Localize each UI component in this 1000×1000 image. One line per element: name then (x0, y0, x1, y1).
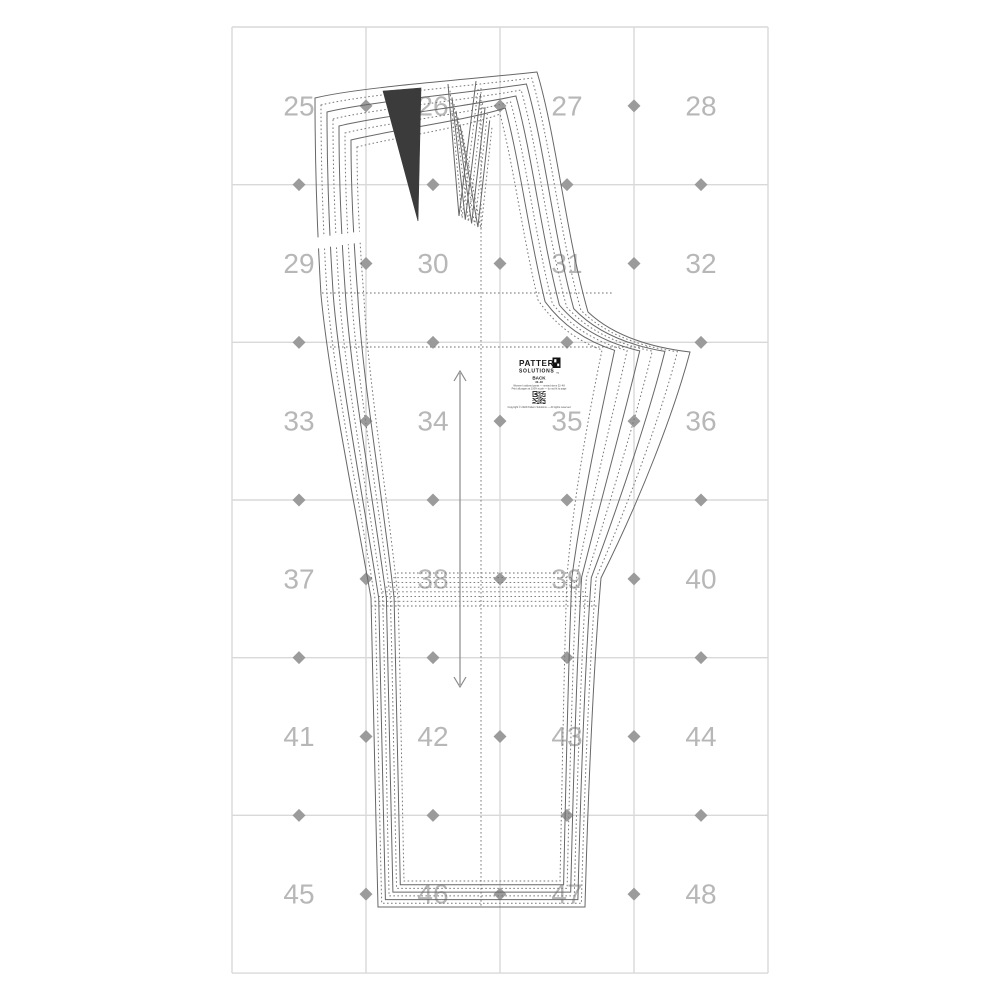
page-number: 28 (685, 90, 716, 121)
qr-module (543, 392, 544, 393)
alignment-diamond (561, 178, 574, 191)
alignment-diamond (360, 888, 373, 901)
qr-module (539, 403, 540, 404)
alignment-diamond (628, 99, 641, 112)
alignment-diamond (360, 730, 373, 743)
brand-logo-notch (554, 359, 556, 362)
qr-module (535, 391, 536, 392)
page-number: 36 (685, 406, 716, 437)
page-number: 25 (283, 90, 314, 121)
page-number: 31 (551, 248, 582, 279)
qr-module (533, 392, 534, 393)
qr-module (541, 396, 542, 397)
alignment-diamond (494, 888, 507, 901)
page-number: 46 (417, 879, 448, 910)
alignment-diamond (561, 809, 574, 822)
size-outline (321, 78, 677, 903)
qr-module (537, 391, 538, 392)
qr-module (533, 402, 534, 403)
alignment-diamond (561, 651, 574, 664)
qr-module (545, 391, 546, 392)
qr-module (545, 393, 546, 394)
qr-module (540, 395, 541, 396)
qr-module (537, 401, 538, 402)
page-number: 41 (283, 721, 314, 752)
grainline-arrow (454, 371, 466, 687)
qr-module (535, 403, 536, 404)
qr-module (537, 396, 538, 397)
qr-module (533, 394, 534, 395)
qr-module (540, 402, 541, 403)
alignment-diamond (427, 178, 440, 191)
qr-module (537, 398, 538, 399)
qr-module (535, 394, 536, 395)
qr-module (543, 403, 544, 404)
qr-module (539, 391, 540, 392)
qr-module (538, 403, 539, 404)
qr-module (536, 401, 537, 402)
page-number: 42 (417, 721, 448, 752)
qr-module (541, 403, 542, 404)
page-number: 35 (551, 406, 582, 437)
alignment-diamond (293, 494, 306, 507)
alignment-diamond (427, 336, 440, 349)
alignment-diamond (427, 651, 440, 664)
qr-module (544, 399, 545, 400)
qr-module (536, 396, 537, 397)
qr-module (536, 393, 537, 394)
qr-module (543, 398, 544, 399)
qr-module (543, 402, 544, 403)
qr-module (545, 402, 546, 403)
copyright-line: Copyright © 2024 Pattern Solutions — All… (508, 406, 572, 409)
alignment-diamond (628, 888, 641, 901)
qr-module (536, 400, 537, 401)
alignment-diamond (494, 257, 507, 270)
alignment-diamond (695, 651, 708, 664)
qr-module (544, 396, 545, 397)
qr-module (533, 391, 534, 392)
alignment-diamond (628, 257, 641, 270)
qr-module (541, 401, 542, 402)
qr-module (538, 402, 539, 403)
lengthen-shorten-gap (294, 231, 363, 251)
alignment-diamond (293, 336, 306, 349)
page-number: 44 (685, 721, 716, 752)
alignment-diamond (628, 415, 641, 428)
qr-module (534, 399, 535, 400)
page-number: 39 (551, 563, 582, 594)
qr-module (541, 397, 542, 398)
page-number: 34 (417, 406, 448, 437)
size-outline (339, 96, 640, 892)
qr-module (543, 391, 544, 392)
page-number: 30 (417, 248, 448, 279)
qr-module (543, 394, 544, 395)
qr-module (544, 400, 545, 401)
alignment-diamond (494, 730, 507, 743)
alignment-diamond (628, 730, 641, 743)
qr-module (538, 398, 539, 399)
qr-module (535, 393, 536, 394)
qr-module (540, 392, 541, 393)
qr-module (539, 392, 540, 393)
qr-code (533, 391, 546, 404)
page-number: 40 (685, 563, 716, 594)
qr-module (536, 394, 537, 395)
page-number: 29 (283, 248, 314, 279)
qr-module (545, 400, 546, 401)
qr-module (537, 392, 538, 393)
alignment-diamond (695, 494, 708, 507)
qr-module (541, 399, 542, 400)
qr-module (545, 394, 546, 395)
alignment-diamond (494, 415, 507, 428)
brand-logo-notch2 (557, 364, 559, 367)
alignment-diamond (427, 494, 440, 507)
alignment-diamond (293, 809, 306, 822)
qr-module (540, 394, 541, 395)
qr-module (534, 396, 535, 397)
pattern-sheet-canvas: 2526272829303132333435363738394041424344… (0, 0, 1000, 1000)
qr-module (540, 398, 541, 399)
qr-module (539, 401, 540, 402)
qr-module (545, 396, 546, 397)
qr-module (541, 402, 542, 403)
pattern-piece-back (294, 72, 690, 907)
page-number: 38 (417, 563, 448, 594)
qr-module (542, 398, 543, 399)
qr-module (543, 396, 544, 397)
assembly-grid (232, 27, 768, 973)
qr-module (543, 400, 544, 401)
qr-module (545, 401, 546, 402)
qr-module (540, 397, 541, 398)
page-number: 32 (685, 248, 716, 279)
info-line-2: Print all pages at 100% scale — do not f… (512, 387, 567, 390)
alignment-diamond (628, 572, 641, 585)
qr-module (533, 393, 534, 394)
qr-module (535, 400, 536, 401)
qr-module (538, 400, 539, 401)
trademark-symbol: ™ (556, 372, 559, 376)
alignment-diamond (695, 336, 708, 349)
page-number: 48 (685, 879, 716, 910)
qr-module (535, 396, 536, 397)
qr-module (542, 395, 543, 396)
qr-module (536, 398, 537, 399)
alignment-diamond (293, 178, 306, 191)
dart-filled (383, 88, 421, 221)
qr-module (535, 402, 536, 403)
qr-module (533, 403, 534, 404)
alignment-diamond (427, 809, 440, 822)
piece-name: BACK (532, 375, 546, 380)
page-number: 37 (283, 563, 314, 594)
qr-module (533, 395, 534, 396)
qr-module (534, 391, 535, 392)
qr-module (539, 399, 540, 400)
qr-module (535, 399, 536, 400)
page-number: 33 (283, 406, 314, 437)
qr-module (534, 402, 535, 403)
pattern-label: PATTERN SOLUTIONS ™ BACK 32–48 Women's t… (508, 358, 572, 410)
qr-module (543, 393, 544, 394)
alignment-diamond (561, 494, 574, 507)
qr-module (533, 400, 534, 401)
page-number: 45 (283, 879, 314, 910)
qr-module (545, 395, 546, 396)
qr-module (537, 393, 538, 394)
qr-module (536, 391, 537, 392)
qr-module (542, 399, 543, 400)
qr-module (533, 398, 534, 399)
qr-module (541, 400, 542, 401)
brand-name-line2: SOLUTIONS (519, 369, 554, 375)
qr-module (545, 403, 546, 404)
qr-module (537, 394, 538, 395)
alignment-diamond (293, 651, 306, 664)
page-number: 27 (551, 90, 582, 121)
pattern-sheet: 2526272829303132333435363738394041424344… (0, 0, 1000, 1000)
qr-module (538, 395, 539, 396)
qr-module (533, 396, 534, 397)
qr-module (539, 396, 540, 397)
qr-module (539, 393, 540, 394)
qr-module (542, 393, 543, 394)
brand-logo-icon (553, 358, 561, 369)
alignment-diamond (695, 809, 708, 822)
qr-module (540, 400, 541, 401)
alignment-diamond (695, 178, 708, 191)
qr-module (537, 395, 538, 396)
qr-module (545, 398, 546, 399)
alignment-diamond (494, 572, 507, 585)
qr-module (534, 398, 535, 399)
qr-module (541, 391, 542, 392)
qr-module (537, 403, 538, 404)
size-outline (327, 84, 665, 900)
qr-module (538, 397, 539, 398)
size-range: 32–48 (535, 380, 543, 384)
qr-module (544, 391, 545, 392)
qr-module (544, 403, 545, 404)
qr-module (541, 393, 542, 394)
